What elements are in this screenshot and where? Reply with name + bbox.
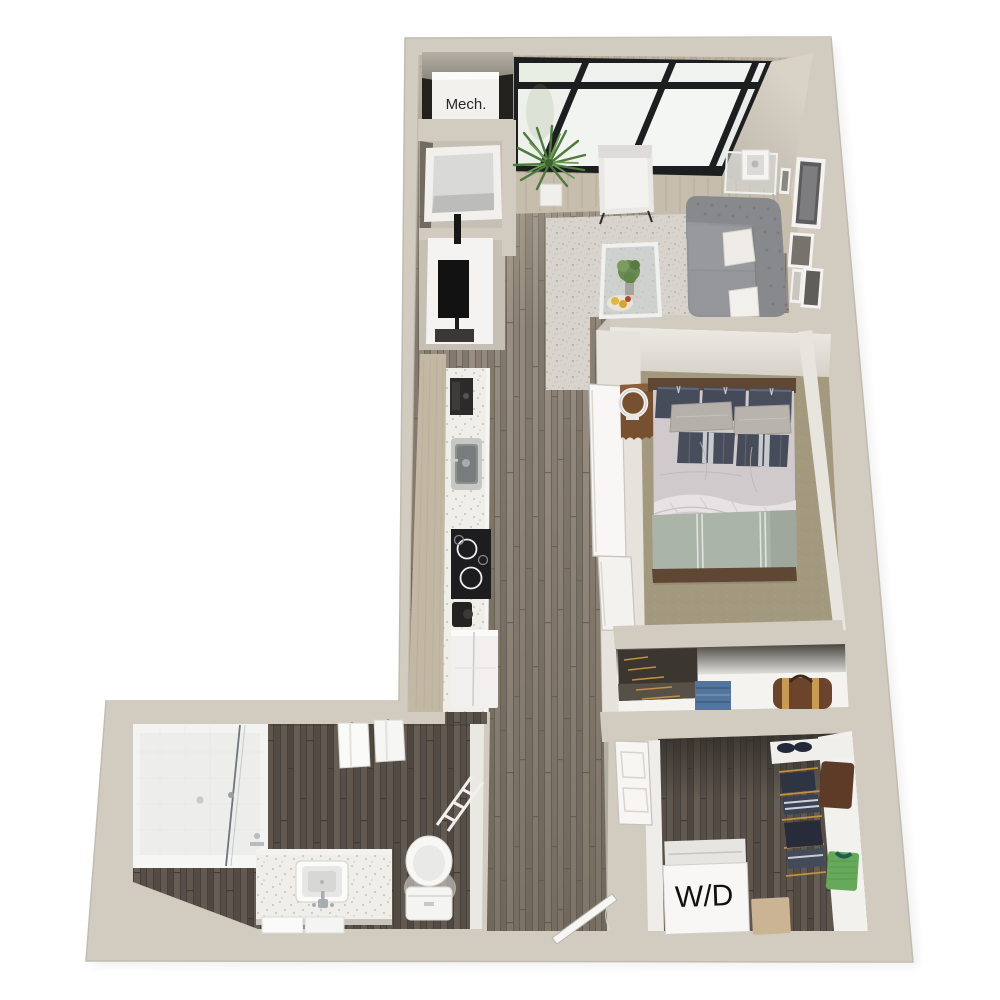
- svg-text:W/D: W/D: [675, 879, 734, 914]
- svg-text:Mech.: Mech.: [446, 96, 487, 113]
